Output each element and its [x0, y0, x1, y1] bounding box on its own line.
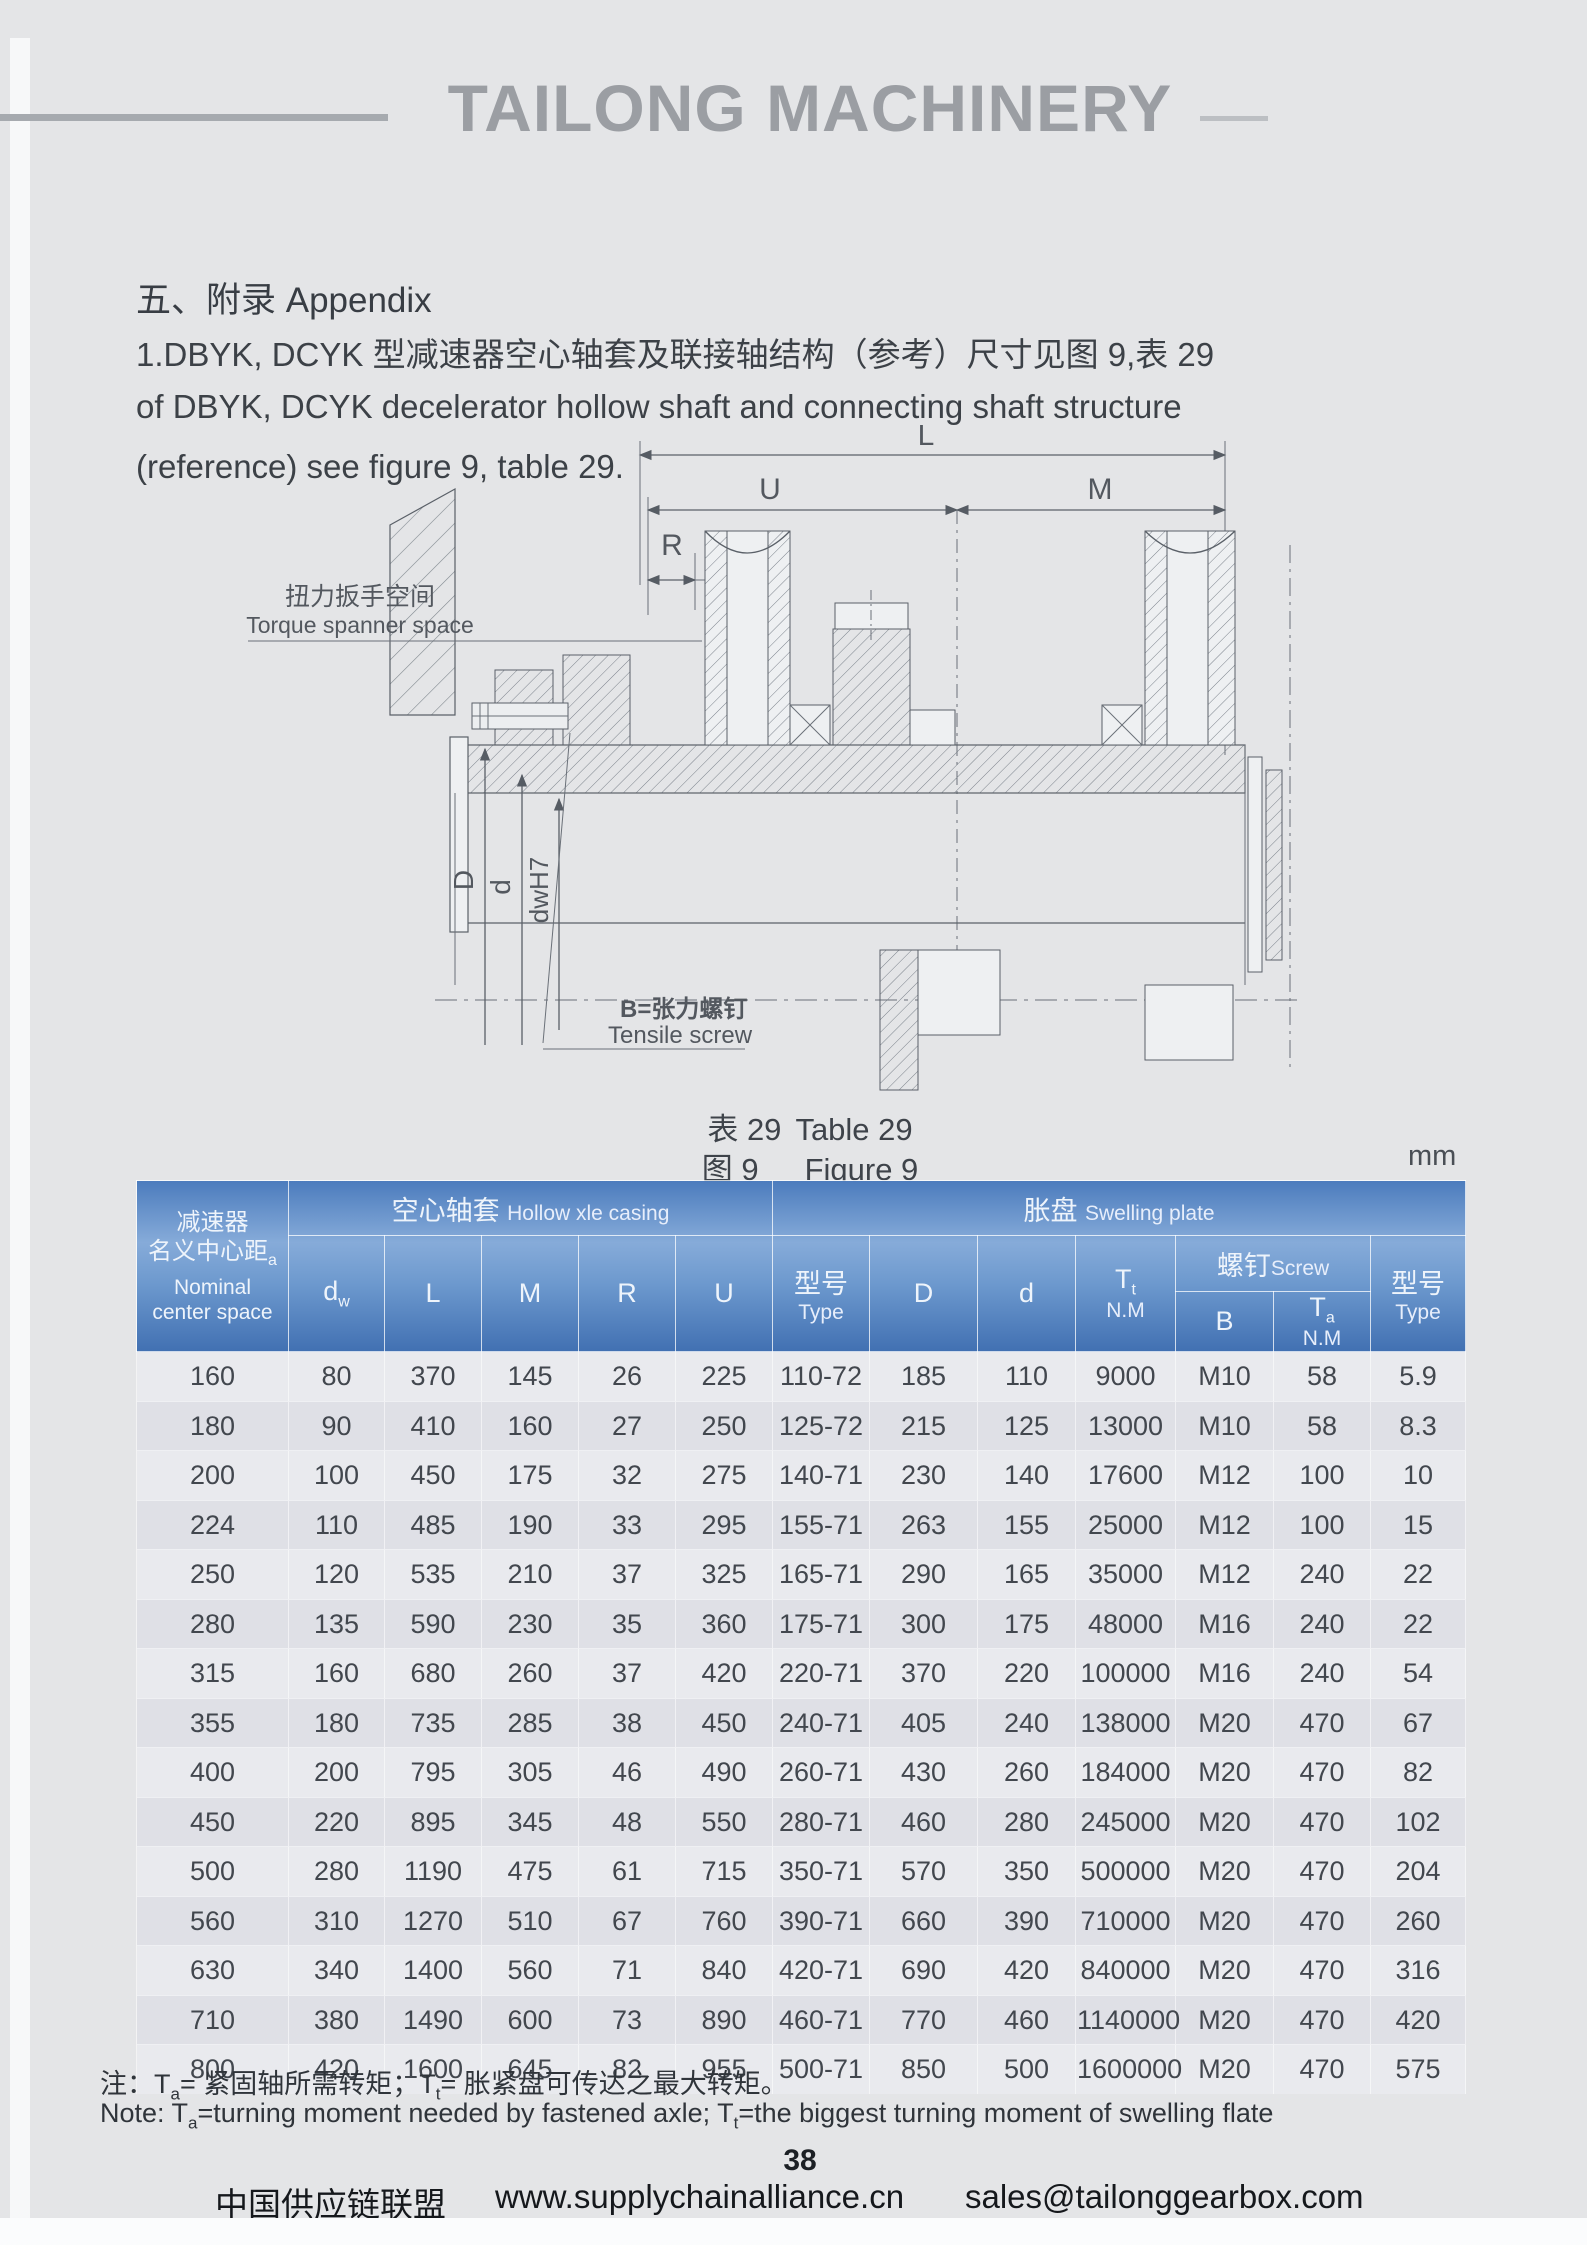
table-row: 1809041016027250125-7221512513000M10588.…	[137, 1401, 1466, 1451]
page-number: 38	[700, 2144, 900, 2178]
table-cell: 180	[289, 1698, 385, 1748]
table-cell: 560	[137, 1896, 289, 1946]
scanned-catalog-page: TAILONG MACHINERY 五、附录 Appendix 1.DBYK, …	[0, 0, 1587, 2245]
table-cell: 405	[870, 1698, 978, 1748]
table-cell: 26	[579, 1352, 676, 1402]
table-cell: 125-72	[773, 1401, 870, 1451]
footer-website: www.supplychainalliance.cn	[495, 2178, 904, 2216]
table-cell: M12	[1176, 1550, 1274, 1600]
dim-label-L: L	[918, 425, 935, 452]
table-cell: M20	[1176, 1797, 1274, 1847]
table-cell: 360	[676, 1599, 773, 1649]
dim-label-d: d	[485, 879, 516, 895]
table-cell: 300	[870, 1599, 978, 1649]
table-cell: M12	[1176, 1500, 1274, 1550]
table-row: 630340140056071840420-71690420840000M204…	[137, 1946, 1466, 1996]
table-cell: 9000	[1076, 1352, 1176, 1402]
table-cell: 230	[870, 1451, 978, 1501]
table-cell: 350	[978, 1847, 1076, 1897]
table-cell: 290	[870, 1550, 978, 1600]
table-cell: 165-71	[773, 1550, 870, 1600]
table-cell: 240	[1274, 1649, 1371, 1699]
brand-rule-left	[0, 114, 388, 121]
table-cell: 102	[1371, 1797, 1466, 1847]
scan-edge-bottom	[0, 2218, 1587, 2245]
table-header: 减速器 名义中心距a Nominal center space 空心轴套 Hol…	[137, 1181, 1466, 1352]
table-cell: 350-71	[773, 1847, 870, 1897]
table-cell: 13000	[1076, 1401, 1176, 1451]
table-cell: 380	[289, 1995, 385, 2045]
table-cell: 80	[289, 1352, 385, 1402]
table-cell: 38	[579, 1698, 676, 1748]
table-cell: 305	[482, 1748, 579, 1798]
table-cell: 100	[289, 1451, 385, 1501]
table-cell: 10	[1371, 1451, 1466, 1501]
table-cell: 190	[482, 1500, 579, 1550]
table-cell: 260	[1371, 1896, 1466, 1946]
table-cell: M16	[1176, 1649, 1274, 1699]
table-cell: 100	[1274, 1451, 1371, 1501]
col-header-L: L	[385, 1236, 482, 1352]
table-cell: 1490	[385, 1995, 482, 2045]
table-cell: 33	[579, 1500, 676, 1550]
table-cell: 175	[482, 1451, 579, 1501]
table-cell: 260-71	[773, 1748, 870, 1798]
table-cell: 138000	[1076, 1698, 1176, 1748]
table-cell: 325	[676, 1550, 773, 1600]
table-cell: 15	[1371, 1500, 1466, 1550]
table-cell: M10	[1176, 1352, 1274, 1402]
torque-spanner-label-cn: 扭力扳手空间	[285, 583, 435, 611]
table-cell: 850	[870, 2045, 978, 2094]
dim-label-R: R	[661, 529, 683, 562]
table-row: 40020079530546490260-71430260184000M2047…	[137, 1748, 1466, 1798]
table-cell: 500	[978, 2045, 1076, 2094]
torque-spanner-label-en: Torque spanner space	[246, 612, 474, 638]
table-cell: 48	[579, 1797, 676, 1847]
table-cell: 280-71	[773, 1797, 870, 1847]
table-cell: 470	[1274, 1896, 1371, 1946]
dimension-table: 减速器 名义中心距a Nominal center space 空心轴套 Hol…	[136, 1180, 1466, 2094]
note-en: Note: Ta=turning moment needed by fasten…	[100, 2098, 1273, 2133]
table-cell: 390-71	[773, 1896, 870, 1946]
table-row: 25012053521037325165-7129016535000M12240…	[137, 1550, 1466, 1600]
col-header-B: B	[1176, 1292, 1274, 1352]
table-cell: 35	[579, 1599, 676, 1649]
table-group-row: 减速器 名义中心距a Nominal center space 空心轴套 Hol…	[137, 1181, 1466, 1236]
brand-rule-right	[1200, 116, 1268, 121]
table-cell: 220-71	[773, 1649, 870, 1699]
table-cell: 535	[385, 1550, 482, 1600]
table-row: 710380149060073890460-717704601140000M20…	[137, 1995, 1466, 2045]
table-cell: 32	[579, 1451, 676, 1501]
table-cell: 1140000	[1076, 1995, 1176, 2045]
table-cell: 895	[385, 1797, 482, 1847]
table-row: 22411048519033295155-7126315525000M12100…	[137, 1500, 1466, 1550]
table-cell: 125	[978, 1401, 1076, 1451]
col-header-U: U	[676, 1236, 773, 1352]
table-cell: 470	[1274, 2045, 1371, 2094]
table-cell: 710	[137, 1995, 289, 2045]
table-cell: 37	[579, 1550, 676, 1600]
table-cell: 840	[676, 1946, 773, 1996]
table-cell: 575	[1371, 2045, 1466, 2094]
table-cell: 590	[385, 1599, 482, 1649]
table-body: 1608037014526225110-721851109000M10585.9…	[137, 1352, 1466, 2094]
table-cell: 420	[676, 1649, 773, 1699]
col-header-type-casing: 型号Type	[773, 1236, 870, 1352]
table-cell: 450	[137, 1797, 289, 1847]
table-cell: 200	[137, 1451, 289, 1501]
table-cell: 410	[385, 1401, 482, 1451]
table-cell: 460-71	[773, 1995, 870, 2045]
unit-label: mm	[1408, 1140, 1456, 1173]
table-subheader-row: dw L M R U 型号Type D d Tt N.M 螺钉Screw 型号	[137, 1236, 1466, 1292]
group-header-screw: 螺钉Screw	[1176, 1236, 1371, 1292]
table-cell: 250	[137, 1550, 289, 1600]
table-cell: 110	[289, 1500, 385, 1550]
table-cell: 160	[289, 1649, 385, 1699]
col-header-R: R	[579, 1236, 676, 1352]
table-cell: 500000	[1076, 1847, 1176, 1897]
dim-label-D: D	[448, 870, 479, 890]
table-row: 500280119047561715350-71570350500000M204…	[137, 1847, 1466, 1897]
table-cell: M20	[1176, 1896, 1274, 1946]
table-cell: 310	[289, 1896, 385, 1946]
table-cell: 5.9	[1371, 1352, 1466, 1402]
col-header-Tt: Tt N.M	[1076, 1236, 1176, 1352]
table-cell: 145	[482, 1352, 579, 1402]
table-cell: 690	[870, 1946, 978, 1996]
table-cell: 58	[1274, 1352, 1371, 1402]
table-cell: 25000	[1076, 1500, 1176, 1550]
table-cell: 400	[137, 1748, 289, 1798]
table-cell: 155	[978, 1500, 1076, 1550]
table-cell: 200	[289, 1748, 385, 1798]
appendix-paragraph-line1: 1.DBYK, DCYK 型减速器空心轴套及联接轴结构（参考）尺寸见图 9,表 …	[136, 328, 1214, 376]
table-cell: 8.3	[1371, 1401, 1466, 1451]
table-cell: 550	[676, 1797, 773, 1847]
table-cell: 500	[137, 1847, 289, 1897]
figure-9-diagram: L U M R 扭力扳手空间 Torque spanner space	[240, 425, 1320, 1135]
col-header-Ta: Ta N.M	[1274, 1292, 1371, 1352]
table-cell: 510	[482, 1896, 579, 1946]
table-cell: 390	[978, 1896, 1076, 1946]
table-cell: 160	[482, 1401, 579, 1451]
table-cell: 240	[1274, 1599, 1371, 1649]
table-cell: 175-71	[773, 1599, 870, 1649]
table-cell: 660	[870, 1896, 978, 1946]
table-row: 35518073528538450240-71405240138000M2047…	[137, 1698, 1466, 1748]
scan-edge-left	[10, 38, 30, 2218]
table-cell: 370	[870, 1649, 978, 1699]
table-cell: 475	[482, 1847, 579, 1897]
table-cell: 46	[579, 1748, 676, 1798]
table-cell: 210	[482, 1550, 579, 1600]
figure-9-svg: L U M R 扭力扳手空间 Torque spanner space	[240, 425, 1320, 1135]
table-cell: 73	[579, 1995, 676, 2045]
table-cell: 355	[137, 1698, 289, 1748]
brand-title: TAILONG MACHINERY	[420, 70, 1200, 146]
table-cell: 460	[870, 1797, 978, 1847]
table-cell: 160	[137, 1352, 289, 1402]
group-header-swelling-plate: 胀盘 Swelling plate	[773, 1181, 1466, 1236]
table-cell: 340	[289, 1946, 385, 1996]
table-cell: 280	[978, 1797, 1076, 1847]
col-header-M: M	[482, 1236, 579, 1352]
table-cell: 220	[289, 1797, 385, 1847]
table-cell: 450	[385, 1451, 482, 1501]
table-cell: 220	[978, 1649, 1076, 1699]
table-cell: 560	[482, 1946, 579, 1996]
table-cell: 295	[676, 1500, 773, 1550]
table-cell: 135	[289, 1599, 385, 1649]
table-cell: 260	[978, 1748, 1076, 1798]
table-cell: 420	[1371, 1995, 1466, 2045]
table-cell: 48000	[1076, 1599, 1176, 1649]
table-cell: 470	[1274, 1748, 1371, 1798]
table-cell: 470	[1274, 1946, 1371, 1996]
table-cell: 230	[482, 1599, 579, 1649]
table-row: 560310127051067760390-71660390710000M204…	[137, 1896, 1466, 1946]
table-cell: 680	[385, 1649, 482, 1699]
table-cell: 224	[137, 1500, 289, 1550]
table-cell: 630	[137, 1946, 289, 1996]
table-cell: 370	[385, 1352, 482, 1402]
table-cell: M20	[1176, 2045, 1274, 2094]
table-cell: M20	[1176, 1748, 1274, 1798]
table-cell: 54	[1371, 1649, 1466, 1699]
table-cell: 1600000	[1076, 2045, 1176, 2094]
table-cell: M20	[1176, 1995, 1274, 2045]
tensile-screw-label-cn: B=张力螺钉	[620, 996, 747, 1023]
col-header-d: d	[978, 1236, 1076, 1352]
table-cell: 110	[978, 1352, 1076, 1402]
table-cell: M20	[1176, 1698, 1274, 1748]
group-header-hollow-axle-casing: 空心轴套 Hollow xle casing	[289, 1181, 773, 1236]
table-row: 45022089534548550280-71460280245000M2047…	[137, 1797, 1466, 1847]
table-cell: M20	[1176, 1946, 1274, 1996]
table-cell: 140	[978, 1451, 1076, 1501]
table-cell: 110-72	[773, 1352, 870, 1402]
table-cell: 420	[978, 1946, 1076, 1996]
table-cell: 61	[579, 1847, 676, 1897]
table-cell: 100000	[1076, 1649, 1176, 1699]
table-cell: 67	[579, 1896, 676, 1946]
appendix-paragraph-line2: of DBYK, DCYK decelerator hollow shaft a…	[136, 388, 1182, 426]
table-cell: 710000	[1076, 1896, 1176, 1946]
table-row: 1608037014526225110-721851109000M10585.9	[137, 1352, 1466, 1402]
table-cell: 715	[676, 1847, 773, 1897]
table-row: 28013559023035360175-7130017548000M16240…	[137, 1599, 1466, 1649]
table-row: 20010045017532275140-7123014017600M12100…	[137, 1451, 1466, 1501]
table-cell: 27	[579, 1401, 676, 1451]
table-cell: 770	[870, 1995, 978, 2045]
table-cell: 260	[482, 1649, 579, 1699]
table-cell: 460	[978, 1995, 1076, 2045]
table-cell: 450	[676, 1698, 773, 1748]
table-cell: 250	[676, 1401, 773, 1451]
table-cell: 1190	[385, 1847, 482, 1897]
table-cell: 570	[870, 1847, 978, 1897]
table-cell: 82	[1371, 1748, 1466, 1798]
table-cell: 22	[1371, 1550, 1466, 1600]
appendix-title: 五、附录 Appendix	[136, 272, 432, 323]
table-cell: 430	[870, 1748, 978, 1798]
table-cell: 1270	[385, 1896, 482, 1946]
table-cell: 175	[978, 1599, 1076, 1649]
table-cell: 17600	[1076, 1451, 1176, 1501]
table-cell: 600	[482, 1995, 579, 2045]
table-cell: 58	[1274, 1401, 1371, 1451]
table-cell: 315	[137, 1649, 289, 1699]
table-cell: 280	[137, 1599, 289, 1649]
table-cell: 215	[870, 1401, 978, 1451]
table-caption: 表 29Table 29	[600, 1104, 1020, 1149]
table-cell: M10	[1176, 1401, 1274, 1451]
table-cell: 185	[870, 1352, 978, 1402]
table-cell: 165	[978, 1550, 1076, 1600]
table-cell: M20	[1176, 1847, 1274, 1897]
table-cell: 240-71	[773, 1698, 870, 1748]
table-cell: 485	[385, 1500, 482, 1550]
table-cell: 890	[676, 1995, 773, 2045]
table-cell: 316	[1371, 1946, 1466, 1996]
table-cell: 37	[579, 1649, 676, 1699]
col-header-dw: dw	[289, 1236, 385, 1352]
table-cell: 470	[1274, 1995, 1371, 2045]
table-cell: 420-71	[773, 1946, 870, 1996]
tensile-screw-label-en: Tensile screw	[608, 1022, 753, 1049]
table-cell: 760	[676, 1896, 773, 1946]
table-cell: 240	[1274, 1550, 1371, 1600]
dim-label-M: M	[1088, 473, 1113, 506]
dim-label-dwH7: dwH7	[524, 857, 554, 923]
table-cell: 1400	[385, 1946, 482, 1996]
table-cell: M12	[1176, 1451, 1274, 1501]
col-header-type-plate: 型号Type	[1371, 1236, 1466, 1352]
table-cell: 285	[482, 1698, 579, 1748]
table-cell: 140-71	[773, 1451, 870, 1501]
table-cell: 735	[385, 1698, 482, 1748]
footer-email: sales@tailonggearbox.com	[965, 2178, 1364, 2216]
table-cell: 67	[1371, 1698, 1466, 1748]
table-cell: 263	[870, 1500, 978, 1550]
table-cell: 470	[1274, 1698, 1371, 1748]
table-cell: 225	[676, 1352, 773, 1402]
table-row: 31516068026037420220-71370220100000M1624…	[137, 1649, 1466, 1699]
table-cell: 204	[1371, 1847, 1466, 1897]
table-cell: 35000	[1076, 1550, 1176, 1600]
table-cell: 490	[676, 1748, 773, 1798]
table-cell: 470	[1274, 1797, 1371, 1847]
col-header-D: D	[870, 1236, 978, 1352]
table-cell: 90	[289, 1401, 385, 1451]
dim-label-U: U	[759, 473, 781, 506]
table-cell: M16	[1176, 1599, 1274, 1649]
table-cell: 280	[289, 1847, 385, 1897]
table-cell: 795	[385, 1748, 482, 1798]
table-cell: 245000	[1076, 1797, 1176, 1847]
table-cell: 71	[579, 1946, 676, 1996]
table-cell: 240	[978, 1698, 1076, 1748]
table-cell: 120	[289, 1550, 385, 1600]
table-cell: 275	[676, 1451, 773, 1501]
table-cell: 184000	[1076, 1748, 1176, 1798]
table-cell: 470	[1274, 1847, 1371, 1897]
col-header-nominal-center-space: 减速器 名义中心距a Nominal center space	[137, 1181, 289, 1352]
table-cell: 155-71	[773, 1500, 870, 1550]
table-cell: 840000	[1076, 1946, 1176, 1996]
table-cell: 345	[482, 1797, 579, 1847]
table-cell: 22	[1371, 1599, 1466, 1649]
table-cell: 180	[137, 1401, 289, 1451]
table-cell: 100	[1274, 1500, 1371, 1550]
